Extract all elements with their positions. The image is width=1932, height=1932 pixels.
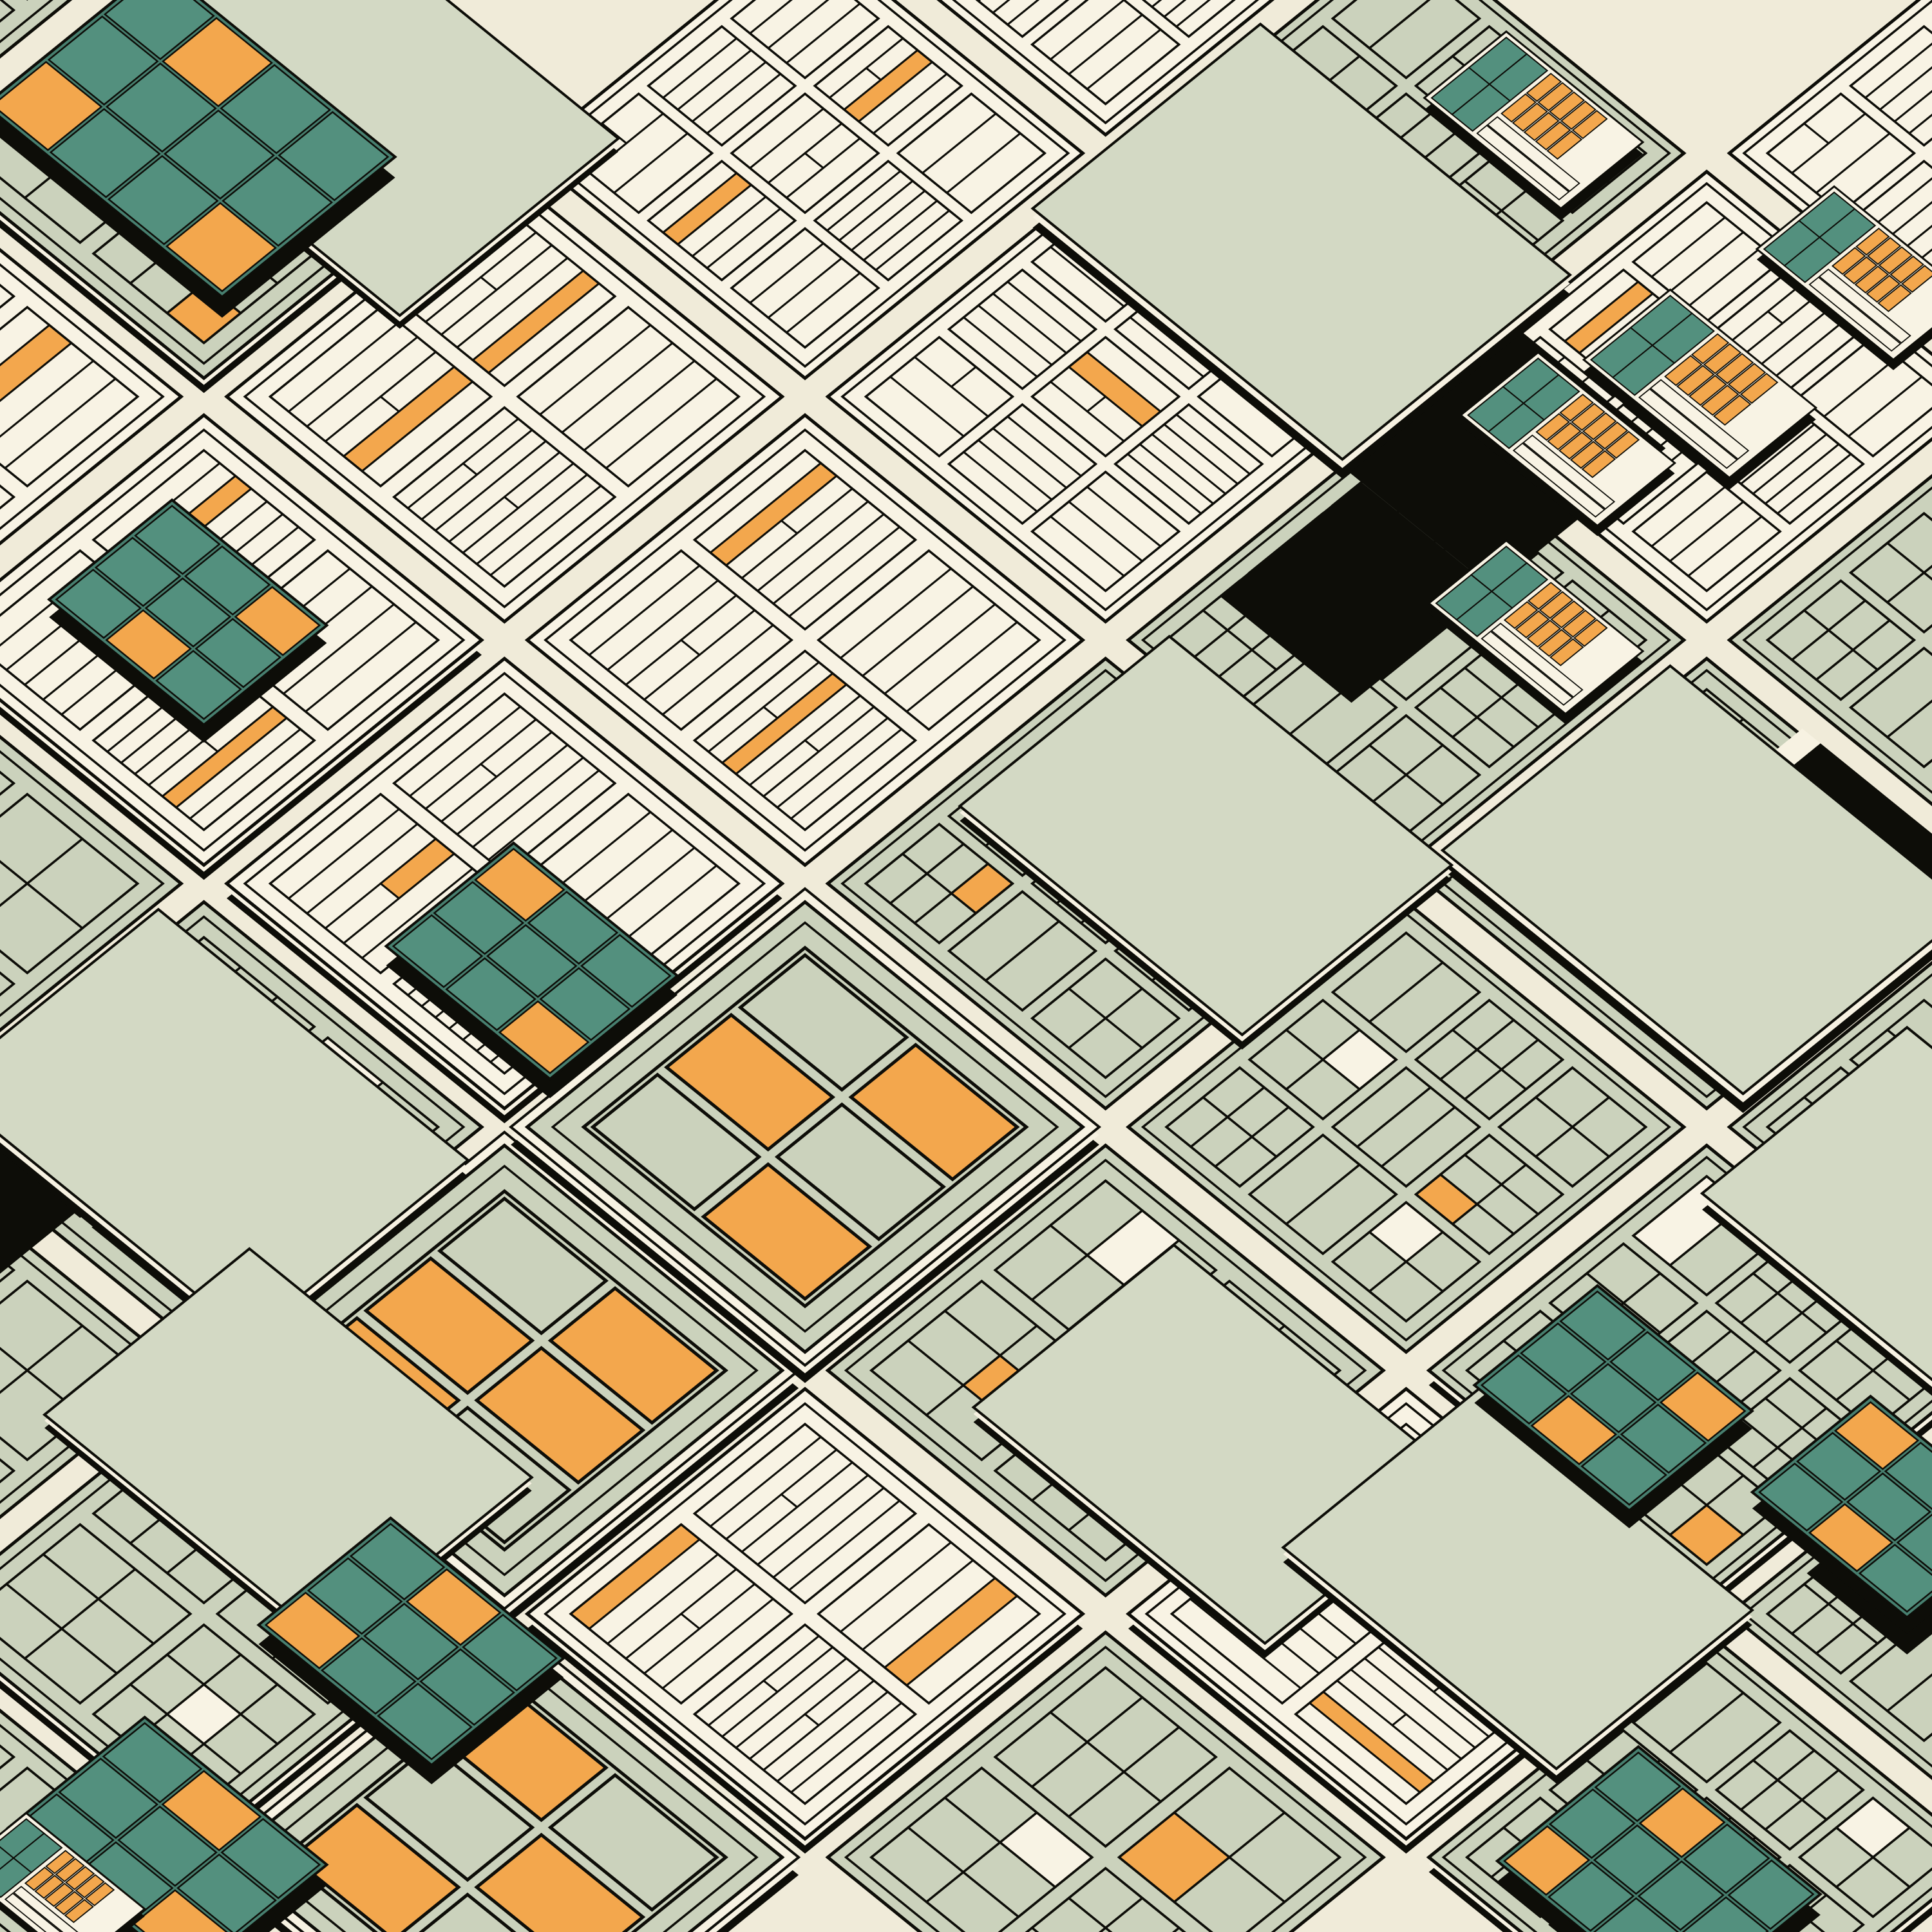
artwork-stage <box>0 0 1932 1932</box>
isometric-artwork-canvas <box>0 0 1932 1932</box>
